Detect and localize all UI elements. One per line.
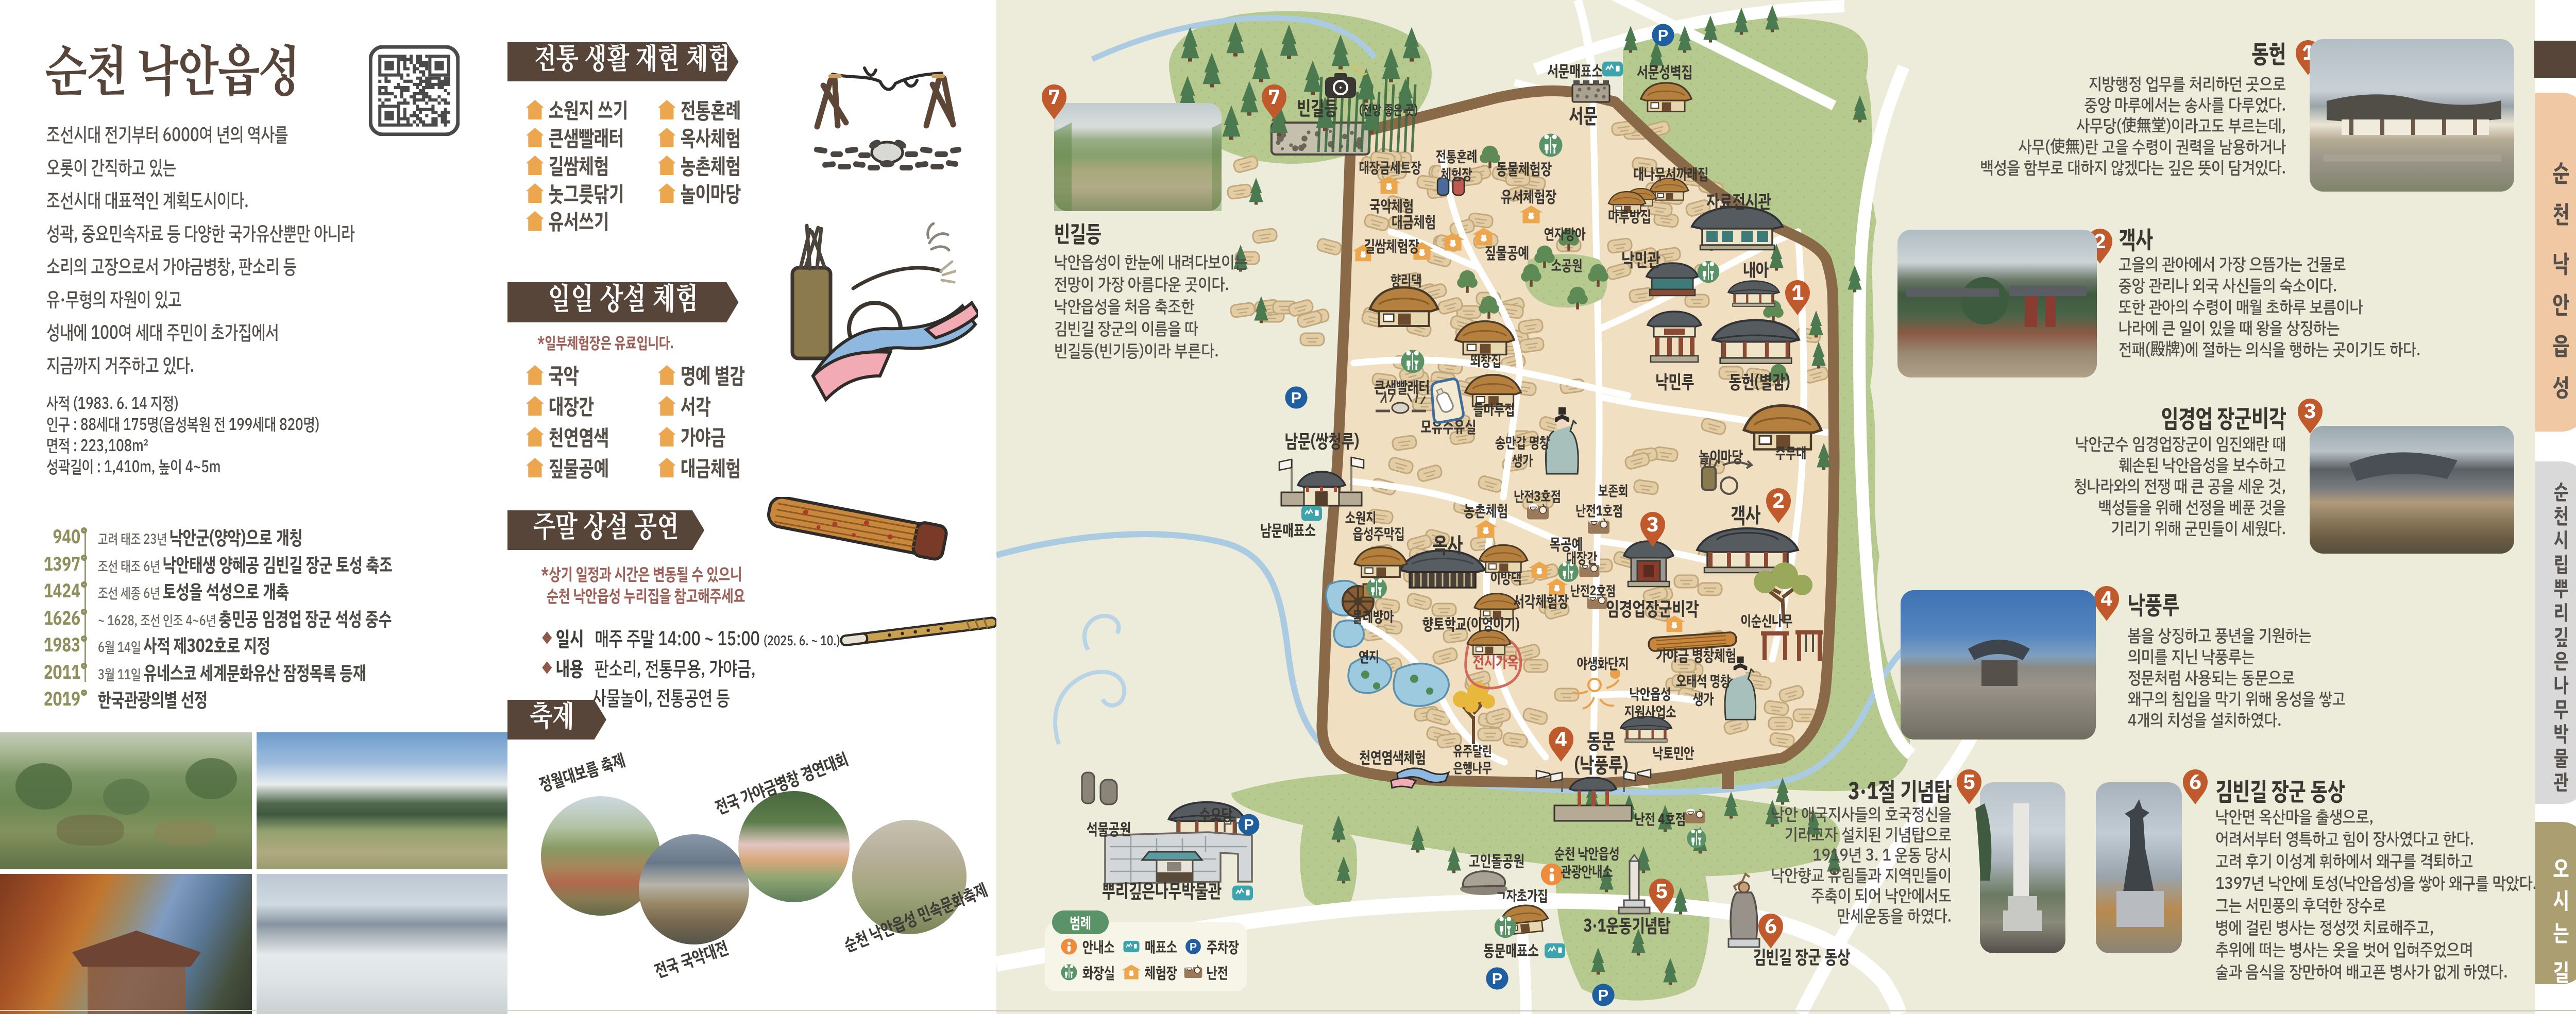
svg-text:서문매표소: 서문매표소 — [1547, 59, 1603, 83]
svg-text:안내소: 안내소 — [1082, 936, 1115, 959]
svg-text:(전망 좋은 곳): (전망 좋은 곳) — [1359, 100, 1418, 120]
svg-text:빈길등: 빈길등 — [1054, 217, 1101, 251]
svg-text:고인돌공원: 고인돌공원 — [1469, 849, 1524, 873]
svg-text:대금체험: 대금체험 — [1392, 210, 1436, 234]
svg-text:가야금 병창체험: 가야금 병창체험 — [1656, 644, 1737, 668]
svg-text:서각체험장: 서각체험장 — [1513, 590, 1569, 614]
svg-text:옥사: 옥사 — [1433, 528, 1463, 561]
svg-text:1: 1 — [1791, 278, 1804, 308]
svg-text:대장금세트장: 대장금세트장 — [1359, 157, 1421, 179]
svg-text:난전 4호점: 난전 4호점 — [1634, 808, 1686, 830]
svg-text:매표소: 매표소 — [1145, 936, 1177, 959]
svg-text:향리댁: 향리댁 — [1391, 269, 1422, 291]
svg-text:보존회: 보존회 — [1598, 480, 1628, 502]
svg-text:뙤창집: 뙤창집 — [1470, 350, 1502, 372]
svg-text:자료전시관: 자료전시관 — [1706, 188, 1771, 216]
svg-text:3·1운동기념탑: 3·1운동기념탑 — [1584, 912, 1671, 940]
svg-text:동물체험장: 동물체험장 — [1496, 157, 1552, 181]
svg-text:대장간: 대장간 — [1566, 547, 1598, 569]
svg-text:뿌리깊은나무박물관: 뿌리깊은나무박물관 — [1102, 876, 1222, 905]
svg-text:낙민관: 낙민관 — [1621, 246, 1660, 274]
svg-text:객사: 객사 — [1731, 499, 1761, 531]
svg-text:주무대: 주무대 — [1775, 442, 1807, 464]
svg-text:서문: 서문 — [1569, 100, 1598, 131]
svg-text:동문매표소: 동문매표소 — [1483, 939, 1539, 963]
svg-text:짚물공예: 짚물공예 — [1485, 241, 1529, 265]
svg-text:난전3호점: 난전3호점 — [1514, 486, 1561, 507]
svg-text:물레방아: 물레방아 — [1352, 606, 1394, 628]
svg-text:수오당: 수오당 — [1199, 803, 1233, 827]
svg-text:난전1호점: 난전1호점 — [1576, 501, 1623, 522]
svg-text:동헌: 동헌 — [2251, 35, 2286, 72]
svg-text:이순신나무: 이순신나무 — [1741, 610, 1793, 632]
svg-text:큰샘빨래터: 큰샘빨래터 — [1374, 375, 1430, 400]
svg-text:빈길등: 빈길등 — [1297, 94, 1337, 123]
svg-text:남문(쌍청루): 남문(쌍청루) — [1285, 427, 1359, 455]
svg-text:길쌈체험장: 길쌈체험장 — [1364, 234, 1419, 259]
svg-text:4: 4 — [2100, 583, 2113, 614]
svg-text:임경업장군비각: 임경업장군비각 — [1606, 594, 1699, 623]
svg-text:동헌(별감): 동헌(별감) — [1728, 368, 1790, 396]
svg-text:6: 6 — [2189, 767, 2201, 798]
svg-text:범례: 범례 — [1070, 912, 1091, 935]
svg-text:낙토민안: 낙토민안 — [1653, 742, 1694, 764]
svg-text:7: 7 — [1048, 82, 1060, 113]
svg-text:이방댁: 이방댁 — [1490, 567, 1522, 589]
svg-text:연지: 연지 — [1359, 646, 1379, 668]
svg-text:유서체험장: 유서체험장 — [1501, 185, 1556, 209]
svg-text:낙민루: 낙민루 — [1655, 368, 1694, 396]
svg-text:유주달린은행나무: 유주달린은행나무 — [1453, 741, 1492, 779]
svg-text:향토학교(이엉이기): 향토학교(이엉이기) — [1422, 612, 1520, 637]
svg-text:서문성벽집: 서문성벽집 — [1637, 60, 1692, 84]
svg-text:낙풍루: 낙풍루 — [2128, 586, 2179, 623]
svg-text:들마루집: 들마루집 — [1473, 399, 1515, 421]
svg-text:4: 4 — [1555, 724, 1567, 755]
svg-text:소공원: 소공원 — [1551, 254, 1583, 277]
svg-text:화장실: 화장실 — [1082, 962, 1115, 985]
svg-text:체험장: 체험장 — [1145, 962, 1177, 985]
svg-text:읍성주막집: 읍성주막집 — [1353, 523, 1405, 545]
svg-text:6: 6 — [1765, 911, 1777, 942]
svg-text:전시가옥: 전시가옥 — [1472, 649, 1518, 674]
svg-text:전통혼례체험장: 전통혼례체험장 — [1436, 145, 1478, 185]
svg-text:ㄱ자초가집: ㄱ자초가집 — [1496, 885, 1548, 907]
svg-text:김빈길 장군 동상: 김빈길 장군 동상 — [1753, 943, 1851, 971]
svg-text:3: 3 — [1647, 509, 1659, 540]
svg-text:연자방아: 연자방아 — [1544, 223, 1586, 245]
svg-text:3: 3 — [2304, 396, 2316, 427]
svg-text:천연염색체험: 천연염색체험 — [1359, 746, 1426, 770]
svg-text:석물공원: 석물공원 — [1087, 817, 1131, 841]
svg-text:내아: 내아 — [1743, 256, 1769, 284]
svg-text:농촌체험: 농촌체험 — [1464, 499, 1508, 523]
svg-text:순천 낙안읍성관광안내소: 순천 낙안읍성관광안내소 — [1554, 843, 1619, 883]
svg-text:대나무서까래집: 대나무서까래집 — [1633, 163, 1708, 186]
svg-text:7: 7 — [1268, 82, 1280, 113]
svg-text:5: 5 — [1655, 876, 1668, 907]
svg-text:마루방집: 마루방집 — [1608, 205, 1651, 229]
svg-text:낙안읍성지원사업소: 낙안읍성지원사업소 — [1624, 683, 1676, 723]
svg-text:야생화단지: 야생화단지 — [1577, 652, 1629, 675]
svg-text:난전: 난전 — [1207, 962, 1228, 985]
svg-text:5: 5 — [1963, 767, 1975, 798]
svg-text:남문매표소: 남문매표소 — [1260, 519, 1316, 543]
svg-text:2: 2 — [1772, 486, 1785, 517]
svg-text:주차장: 주차장 — [1207, 936, 1239, 959]
